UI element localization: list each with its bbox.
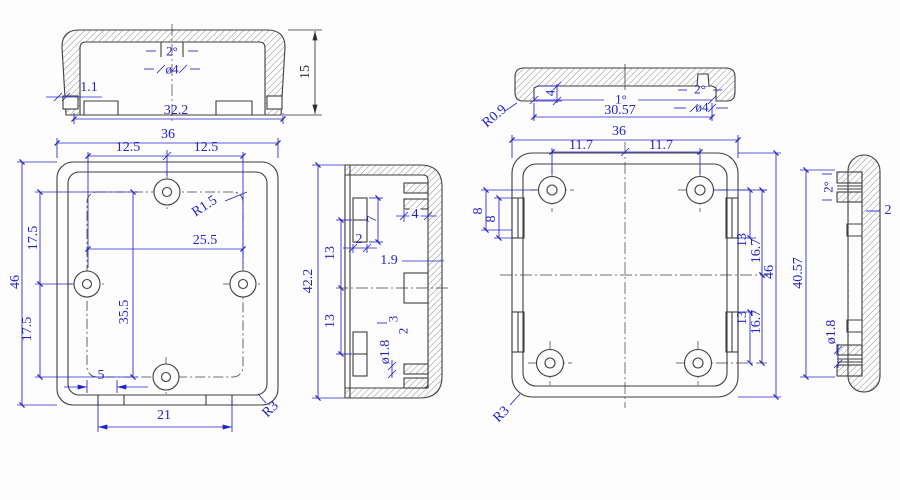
dim-section-clip-lower: 13 (324, 314, 338, 328)
dim-lidtop-inner-width: 30.57 (604, 104, 636, 118)
view-base-inside (481, 135, 781, 408)
dim-lid-overall-width: 32.2 (164, 104, 189, 118)
dim-base-slot-span: 21 (157, 409, 171, 423)
dim-lidside-wall-thickness: 2 (885, 204, 892, 218)
drawing-canvas (0, 0, 900, 500)
dim-section-wall-thickness: 1.9 (380, 254, 398, 268)
dim-lid-rib-width: 1.1 (80, 81, 98, 95)
dim-lid-boss-dia: ø4 (166, 63, 179, 76)
dim-section-clip-upper: 13 (324, 246, 338, 260)
dim-section-clip-width: 2 (356, 233, 363, 247)
dim-inside-overall-height: 46 (763, 265, 777, 279)
dim-base-overall-width: 36 (161, 128, 175, 142)
dim-lidtop-boss-dia: ø4 (696, 101, 709, 114)
dim-base-slot-width: 5 (98, 369, 105, 383)
dim-inside-boss-bottom: 16.7 (750, 310, 764, 335)
dim-inside-hole-right: 11.7 (649, 139, 673, 153)
dim-inside-hole-left: 11.7 (569, 139, 593, 153)
dim-lidside-draft-angle: 2° (822, 181, 835, 193)
dim-base-hole-right: 12.5 (194, 141, 219, 155)
view-base-outside (17, 138, 278, 432)
dim-inside-clip-bottom: 13 (736, 311, 750, 325)
dim-lidside-inner-height: 40.57 (792, 257, 806, 289)
dim-section-hole-dia: ø1.8 (379, 340, 393, 365)
dim-section-overall-height: 42.2 (302, 269, 316, 294)
dim-lidside-hole-dia: ø1.8 (825, 320, 839, 345)
dim-inside-boss-top: 16.7 (750, 239, 764, 264)
dim-base-hole-span: 25.5 (193, 234, 218, 248)
dim-inside-overall-width: 36 (612, 125, 626, 139)
dim-base-hole-lower: 17.5 (21, 317, 35, 342)
dim-section-boss-height: 3 (387, 316, 400, 323)
view-lid-side-section (800, 155, 880, 392)
dim-base-hole-left: 12.5 (116, 141, 141, 155)
dim-section-clip-height: 7 (366, 216, 380, 223)
dim-lid-overall-height: 15 (299, 65, 313, 79)
dim-base-overall-height: 46 (9, 275, 23, 289)
dim-base-hole-upper: 17.5 (27, 226, 41, 251)
dim-lidtop-lip-height: 4 (544, 90, 557, 97)
dim-section-boss-depth: 4 (410, 208, 421, 222)
dim-inside-clip-top: 13 (736, 233, 750, 247)
dim-section-boss-gap: 2 (397, 328, 410, 335)
dim-inside-clip-a: 8 (472, 208, 486, 215)
dim-base-hole-vspan: 35.5 (118, 300, 132, 325)
dim-lid-draft-angle: 2° (166, 45, 178, 58)
cad-drawing-sheet: 2° ø4 1.1 32.2 15 36 12.5 12.5 R1.5 25.5… (0, 0, 900, 500)
dim-lidtop-boss-draft: 2° (694, 83, 706, 96)
dim-inside-clip-b: 8 (485, 216, 499, 223)
